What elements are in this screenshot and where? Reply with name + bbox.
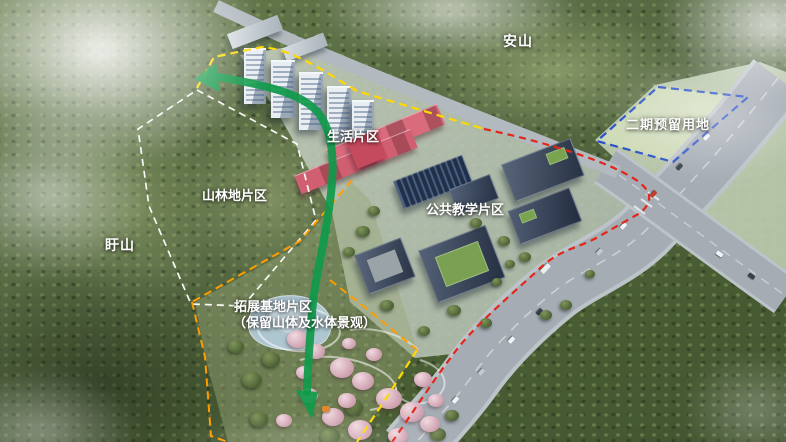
site-red-line — [392, 129, 649, 442]
campus-aerial-site-plan: 安山 二期预留用地 生活片区 山林地片区 盱山 公共教学片区 拓展基地片区 （保… — [0, 0, 786, 442]
label-expansion-base-note: （保留山体及水体景观） — [233, 312, 376, 331]
campus-north-boundary — [197, 47, 484, 129]
planning-overlay — [0, 0, 786, 442]
axis-arrowhead-bottom — [296, 390, 318, 419]
landscape-axis-arrow — [219, 77, 333, 392]
label-xu-shan: 盱山 — [105, 235, 135, 255]
label-public-teaching-zone: 公共教学片区 — [426, 199, 504, 218]
label-living-zone: 生活片区 — [327, 126, 379, 145]
label-mountain-forest-zone: 山林地片区 — [202, 185, 267, 204]
label-an-shan: 安山 — [503, 31, 533, 51]
expansion-base-boundary-sw — [192, 302, 228, 442]
label-phase2-reserved-land: 二期预留用地 — [626, 114, 710, 133]
campus-south-boundary — [357, 350, 417, 442]
